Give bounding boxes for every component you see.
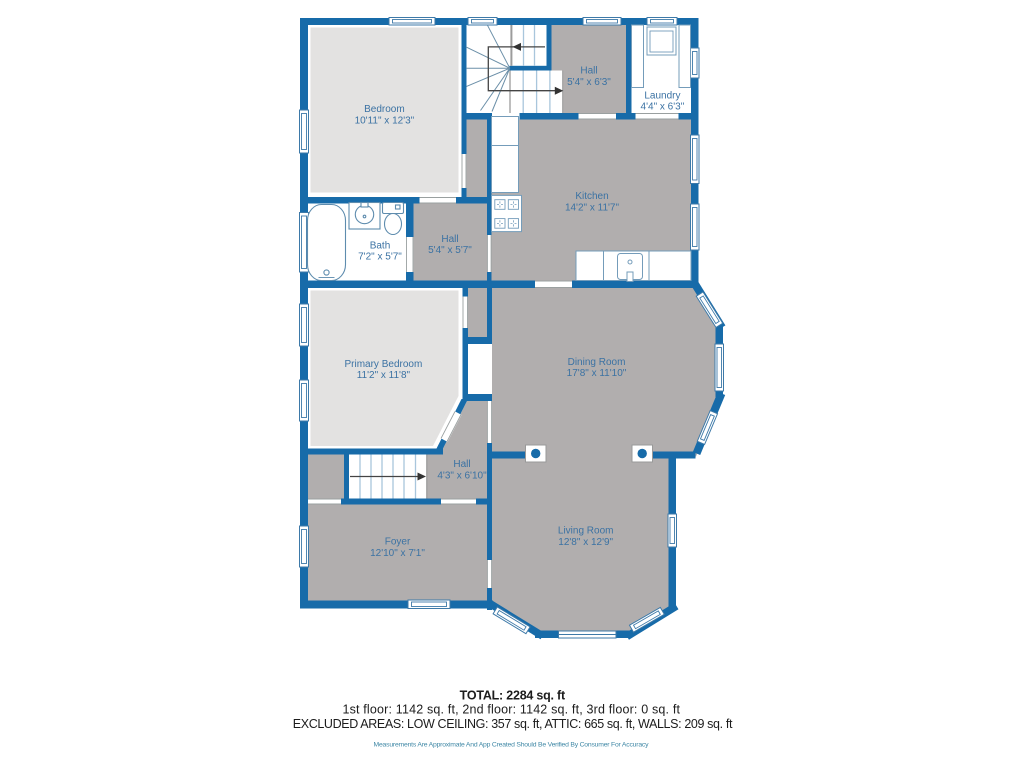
svg-text:12'10" x 7'1": 12'10" x 7'1" (370, 548, 425, 559)
svg-text:Primary Bedroom: Primary Bedroom (344, 359, 422, 370)
svg-text:Dining Room: Dining Room (568, 357, 626, 368)
svg-text:17'8" x 11'10": 17'8" x 11'10" (567, 368, 627, 379)
svg-text:Bath: Bath (370, 241, 391, 252)
svg-text:5'4" x 5'7": 5'4" x 5'7" (428, 245, 472, 256)
svg-text:Laundry: Laundry (644, 91, 680, 102)
svg-text:7'2" x 5'7": 7'2" x 5'7" (358, 252, 402, 263)
svg-text:TOTAL: 2284 sq. ft: TOTAL: 2284 sq. ft (460, 689, 566, 703)
svg-text:Living Room: Living Room (558, 526, 614, 537)
svg-text:4'4" x 6'3": 4'4" x 6'3" (641, 102, 685, 113)
svg-text:10'11" x 12'3": 10'11" x 12'3" (355, 115, 415, 126)
svg-text:11'2" x 11'8": 11'2" x 11'8" (357, 370, 411, 381)
svg-text:4'3" x 6'10": 4'3" x 6'10" (437, 471, 487, 482)
svg-text:5'4" x 6'3": 5'4" x 6'3" (567, 77, 611, 88)
svg-text:Hall: Hall (580, 66, 597, 77)
svg-text:Measurements Are Approximate A: Measurements Are Approximate And App Cre… (374, 742, 650, 749)
svg-text:Foyer: Foyer (385, 536, 411, 547)
svg-text:Bedroom: Bedroom (364, 104, 405, 115)
svg-text:1st floor: 1142 sq. ft, 2nd fl: 1st floor: 1142 sq. ft, 2nd floor: 1142 … (342, 703, 680, 717)
svg-text:Hall: Hall (441, 234, 458, 245)
svg-text:EXCLUDED AREAS: LOW CEILING: 3: EXCLUDED AREAS: LOW CEILING: 357 sq. ft,… (293, 717, 733, 731)
svg-text:14'2" x 11'7": 14'2" x 11'7" (565, 202, 620, 213)
svg-text:Kitchen: Kitchen (575, 191, 608, 202)
svg-text:Hall: Hall (453, 459, 470, 470)
svg-text:12'8" x 12'9": 12'8" x 12'9" (558, 537, 613, 548)
